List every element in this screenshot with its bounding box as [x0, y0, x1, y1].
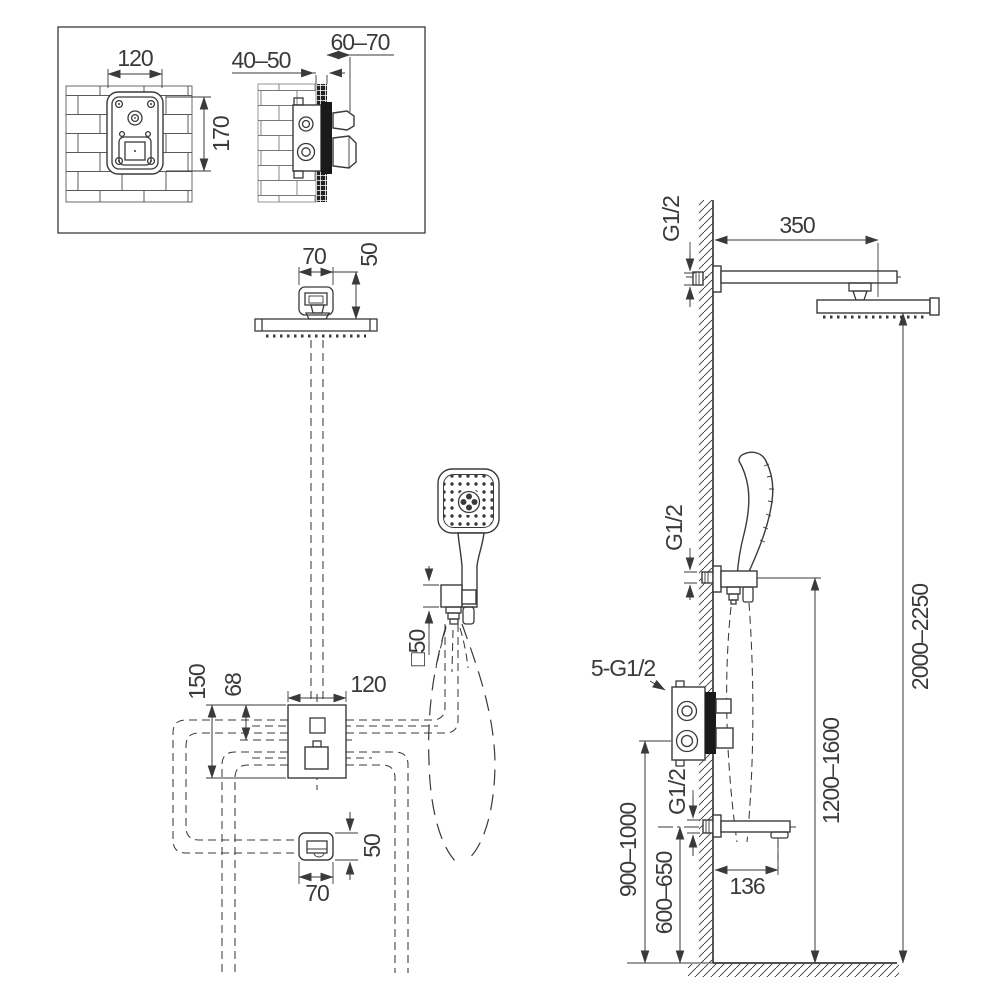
spout-flange — [713, 815, 721, 837]
dim-arm-plate-width: 70 — [302, 243, 326, 269]
dim-valve-plate-height: 150 — [184, 664, 210, 700]
valve-box-side — [293, 105, 321, 171]
wall-bracket — [441, 585, 462, 607]
drop-pipe-centerlines — [311, 340, 323, 703]
dim-inset-width: 120 — [117, 45, 153, 71]
dim-thread-spout: G1/2 — [664, 769, 690, 815]
mixer-handle-side — [716, 728, 733, 748]
dim-height-bracket: 1200–1600 — [818, 718, 844, 824]
drawing-page: 120 170 40–50 — [0, 0, 1000, 1000]
dim-valve-outlet-offset: 68 — [220, 673, 246, 697]
side-view: 350 G1/2 G1/2 — [591, 196, 939, 977]
hose-hanging-left — [727, 607, 737, 842]
spout-side: G1/2 136 — [658, 769, 796, 899]
dim-height-head: 2000–2250 — [907, 584, 933, 690]
supply-pipe-right-inner — [346, 765, 395, 973]
rain-head-front — [255, 319, 377, 331]
spout-aerator — [771, 832, 788, 838]
outlet-stub-upper — [333, 111, 354, 130]
supply-pipe-right-outer — [346, 752, 408, 973]
leader-valve-threads — [650, 681, 665, 690]
dim-spout-height: 50 — [359, 834, 385, 858]
valve-body-side — [672, 687, 705, 760]
spout-front: 50 70 — [299, 812, 385, 906]
hose-connector-side — [743, 587, 753, 602]
dim-valve-plate-width: 120 — [350, 671, 386, 697]
mixer-handle — [305, 747, 328, 769]
overhead-shower-front: 70 50 — [255, 243, 382, 703]
spout-body-side — [721, 821, 790, 832]
inset-front-view: 120 170 — [66, 45, 234, 202]
outlet-stub-lower — [333, 136, 356, 168]
dim-inset-height: 170 — [208, 116, 234, 152]
dim-arm-drop: 50 — [356, 243, 382, 267]
rain-head-side — [817, 300, 930, 313]
height-dimensions: 900–1000 600–650 1200–1600 2000–2250 — [615, 313, 933, 963]
dim-thread-valve: 5-G1/2 — [591, 655, 656, 681]
inset-detail-box: 120 170 40–50 — [58, 27, 425, 233]
installation-drawing: 120 170 40–50 — [0, 0, 1000, 1000]
pipe-to-spout-inner — [186, 733, 299, 840]
floor-hatch — [688, 964, 899, 977]
supply-pipe-left-inner — [235, 765, 288, 973]
dim-height-valve: 900–1000 — [615, 803, 641, 898]
hand-shower-front: □50 — [404, 469, 499, 862]
bracket-flange — [713, 566, 721, 592]
arm-flange — [713, 266, 721, 292]
front-view: 70 50 120 150 68 — [173, 243, 499, 973]
dim-arm-length: 350 — [779, 212, 815, 238]
ceiling-bracket — [299, 287, 333, 315]
dim-depth-finish: 60–70 — [331, 29, 390, 55]
diverter-knob-side — [716, 699, 731, 713]
shower-arm — [721, 271, 897, 283]
dim-height-spout: 600–650 — [651, 852, 677, 935]
inset-side-view: 40–50 60–70 — [232, 29, 394, 202]
dim-spout-reach: 136 — [729, 873, 765, 899]
supply-pipe-left-outer — [222, 752, 288, 973]
dim-bracket-square: □50 — [404, 630, 430, 667]
dim-depth-rough: 40–50 — [232, 47, 291, 73]
hose-connector — [463, 607, 474, 624]
dim-spout-width: 70 — [305, 880, 329, 906]
dim-thread-arm: G1/2 — [658, 196, 684, 242]
arm-thread-stub — [693, 272, 703, 285]
hose-hanging-right — [747, 603, 753, 842]
concealed-pipes — [173, 622, 458, 973]
dim-thread-bracket: G1/2 — [661, 505, 687, 551]
tile-layer-bottom — [317, 170, 327, 202]
bracket-body-side — [721, 571, 757, 587]
